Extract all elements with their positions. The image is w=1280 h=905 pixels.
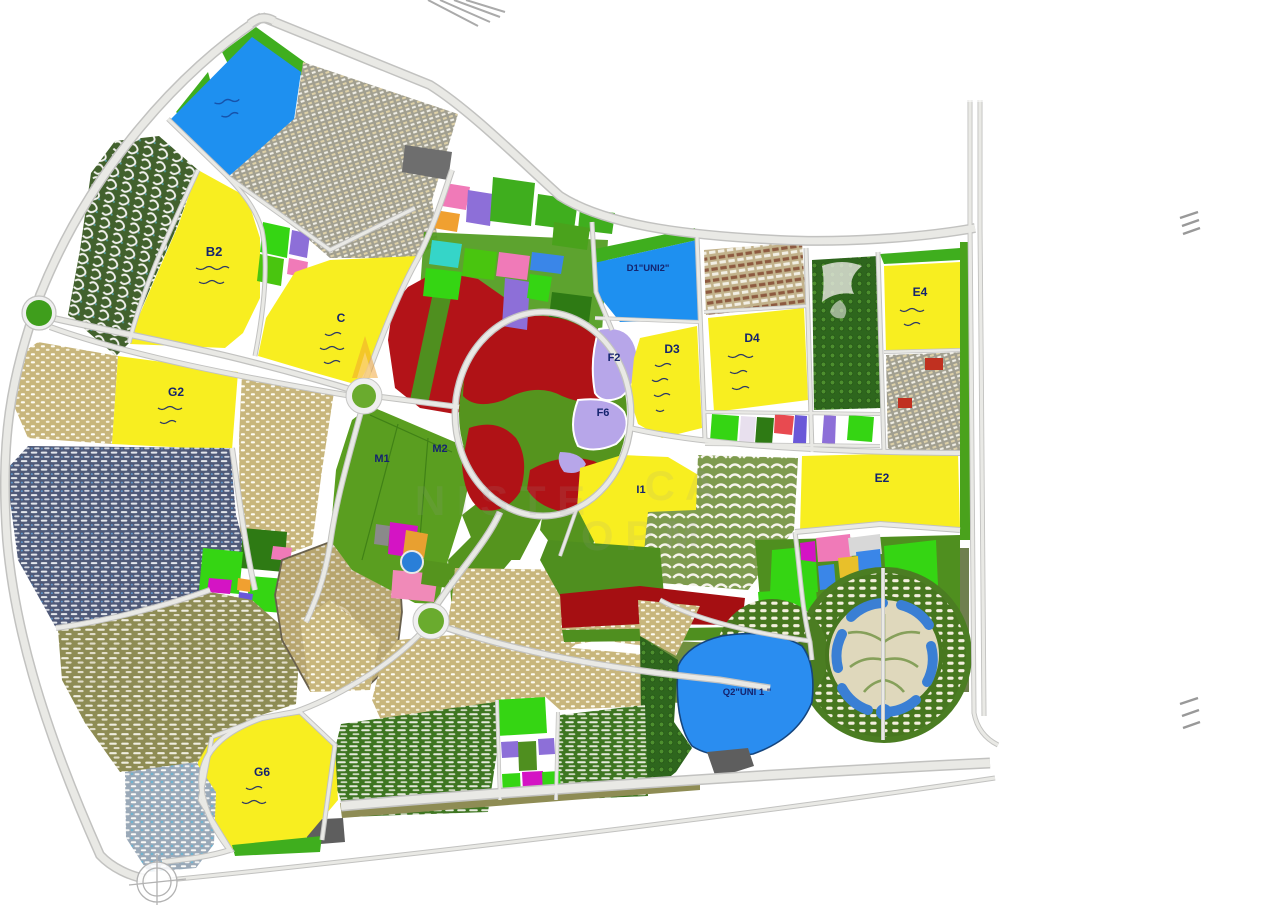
svg-text:O P M: O P M <box>581 512 699 559</box>
svg-text:G2: G2 <box>168 385 184 399</box>
svg-text:Q2"UNI 1 ": Q2"UNI 1 " <box>723 687 772 698</box>
svg-text:M2: M2 <box>432 443 447 455</box>
svg-text:D4: D4 <box>744 331 760 345</box>
svg-text:F2: F2 <box>608 352 621 364</box>
svg-text:N I S T E: N I S T E <box>415 477 585 524</box>
svg-text:C A: C A <box>645 462 716 509</box>
svg-text:C: C <box>337 311 346 325</box>
svg-text:F6: F6 <box>597 407 610 419</box>
svg-text:E4: E4 <box>913 285 928 299</box>
svg-text:G6: G6 <box>254 765 270 779</box>
svg-text:I1: I1 <box>636 484 645 496</box>
svg-text:M1: M1 <box>374 453 389 465</box>
svg-text:D1"UNI2": D1"UNI2" <box>627 263 670 274</box>
svg-text:E2: E2 <box>875 471 890 485</box>
svg-text:B2: B2 <box>206 244 223 259</box>
svg-text:D3: D3 <box>664 342 680 356</box>
